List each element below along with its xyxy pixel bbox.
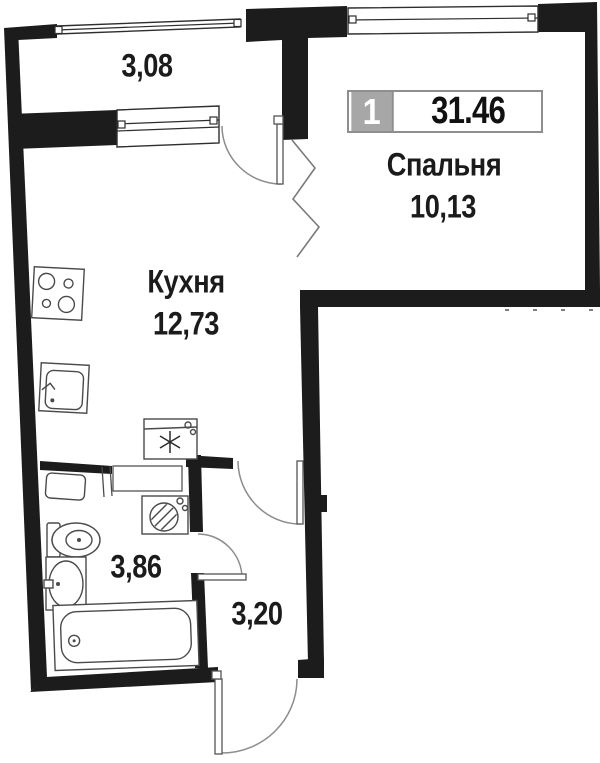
total-area-value: 31.46 [396, 92, 541, 131]
balcony-door [222, 116, 283, 184]
room-count-badge: 1 [351, 92, 393, 131]
balcony-top-window [55, 19, 241, 34]
total-area-badge: 1 31.46 [347, 90, 543, 133]
partition-zigzag [292, 140, 319, 257]
bathtub-icon [53, 601, 199, 671]
stove-icon [32, 267, 85, 321]
floor-plan: 3,08 1 31.46 Спальня 10,13 Кухня 12,73 3… [0, 0, 600, 763]
balcony-sill-window [117, 106, 219, 147]
washbasin-icon [44, 557, 86, 610]
bedroom-window [348, 6, 538, 34]
bedroom-area-label: 10,13 [410, 189, 476, 226]
entrance-door [212, 671, 297, 754]
hall-area-label: 3,20 [231, 596, 282, 633]
cabinet-icon [45, 473, 86, 501]
bathroom-area-label: 3,86 [110, 549, 161, 586]
kitchen-hall-door [238, 461, 303, 524]
kitchen-name-label: Кухня [147, 264, 224, 301]
balcony-area-label: 3,08 [121, 48, 172, 85]
toilet-icon [47, 523, 100, 557]
fridge-icon [144, 419, 197, 459]
washing-machine-icon [142, 496, 188, 539]
bedroom-name-label: Спальня [387, 147, 502, 184]
kitchen-area-label: 12,73 [153, 306, 219, 343]
kitchen-sink-icon [39, 363, 89, 413]
